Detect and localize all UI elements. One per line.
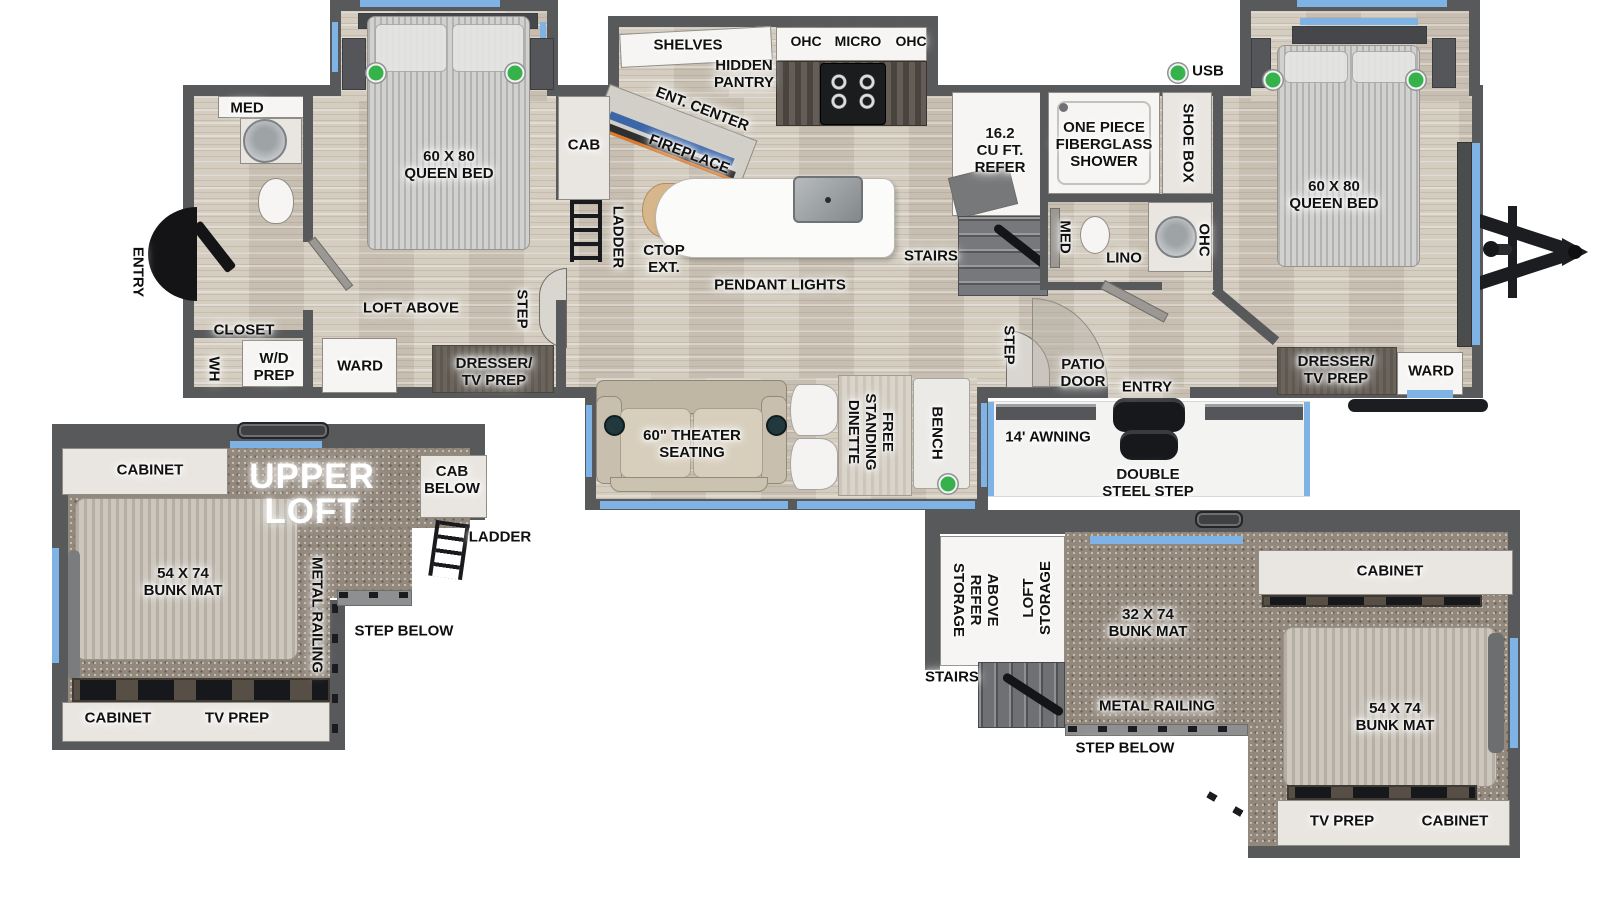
theater-arm-left <box>596 396 622 484</box>
front-headboard-window <box>1300 18 1418 25</box>
rear-nightstand-left <box>342 38 366 90</box>
rear-entry-label: ENTRY <box>129 247 146 297</box>
loftB-stepdown-ticks <box>1206 791 1248 820</box>
front-dresser <box>1277 347 1397 395</box>
usb-charge-dot <box>367 64 386 83</box>
loft-ladder-icon <box>570 200 602 262</box>
loftA-cabinet-top <box>62 448 228 495</box>
loftA-ladder-label: LADDER <box>469 530 532 547</box>
shoe-box <box>1162 92 1212 194</box>
front-slideout-window-top <box>1297 0 1447 7</box>
loftB-bunk54 <box>1283 627 1497 787</box>
living-window-bottom-1 <box>600 501 788 509</box>
loftB-cabinet-bottom <box>1277 800 1510 846</box>
loftB-bottom-wall <box>1260 846 1520 858</box>
loftB-step-below-label: STEP BELOW <box>1076 741 1175 758</box>
loftA-cabinet-bottom <box>62 702 330 742</box>
roof-vent-icon <box>1195 511 1243 528</box>
awning-arm-right <box>1205 404 1303 420</box>
front-tv-panel <box>1457 142 1472 347</box>
living-window-left <box>586 405 592 477</box>
ohc-micro-cabinet <box>776 27 927 61</box>
front-nightstand-right <box>1432 38 1456 88</box>
loftA-rail-ticks <box>332 604 338 740</box>
theater-cushion-left <box>620 408 691 478</box>
bath-mid-wall-h <box>1040 194 1223 202</box>
showerhead-icon <box>1059 103 1068 112</box>
loftA-bunk-mat <box>75 498 298 660</box>
loftA-cab-below <box>420 455 487 518</box>
roof-vent-icon <box>237 422 329 439</box>
loftB-rail-ticks <box>1068 726 1246 732</box>
bath-bed-divider-upper <box>303 96 313 242</box>
usb-charge-dot <box>506 64 525 83</box>
toilet-mid <box>1080 216 1110 254</box>
bed-kitchen-divider-lower <box>556 300 566 387</box>
rear-dresser <box>432 345 554 393</box>
rear-ward <box>322 338 397 393</box>
front-pillow-left <box>1284 51 1348 83</box>
loftA-mat-rail <box>68 550 80 680</box>
rear-bumper-bar <box>1348 399 1488 412</box>
loftB-window-right <box>1510 638 1518 748</box>
loftA-window-left <box>52 548 59 663</box>
kitchen-cab <box>558 96 610 200</box>
theater-cushion-right <box>693 408 763 478</box>
loftB-stairs-label: STAIRS <box>925 670 979 687</box>
living-window-bottom-2 <box>797 501 975 509</box>
awning-end-right <box>1304 402 1310 496</box>
trailer-hitch-icon <box>1478 196 1593 308</box>
loftB-refer-edge <box>928 536 940 666</box>
awning-arm-left <box>996 404 1096 420</box>
entry-door-swing <box>148 207 197 301</box>
front-bottom-window <box>1407 390 1453 398</box>
usb-port-dot <box>1169 64 1188 83</box>
shower <box>1048 92 1160 194</box>
usb-charge-dot <box>1264 71 1283 90</box>
front-ward <box>1397 352 1463 395</box>
cupholder-icon <box>604 415 625 436</box>
theater-front <box>610 477 768 492</box>
dinette-table <box>838 375 912 496</box>
loftB-cabinet-top <box>1258 550 1513 595</box>
usb-charge-dot <box>939 475 958 494</box>
wd-prep-box <box>242 340 306 387</box>
loftB-refer-storage <box>940 536 1065 666</box>
loftB-mat-rail <box>1488 633 1504 753</box>
cooktop-stove-icon <box>820 63 886 125</box>
rv-floorplan-canvas: ENTRY MED CLOSET WH W/D PREP 60 X 80 QUE… <box>0 0 1600 897</box>
awning-end-left <box>988 402 994 496</box>
loftA-step-ticks <box>339 592 411 598</box>
cupholder-icon <box>766 415 787 436</box>
dinette-chair-1 <box>790 384 838 436</box>
entry-opening <box>1108 387 1190 398</box>
theater-arm-right <box>761 396 787 484</box>
loftA-step-below-label: STEP BELOW <box>355 624 454 641</box>
steel-step-2 <box>1120 430 1178 460</box>
island-sink <box>793 176 863 223</box>
living-window-right <box>981 403 987 487</box>
usb-label: USB <box>1192 64 1224 81</box>
loftA-tv-slots <box>72 678 330 702</box>
rear-nightstand-right <box>530 38 554 90</box>
usb-charge-dot <box>1407 71 1426 90</box>
rear-pillow-left <box>375 24 447 72</box>
loftA-ladder-icon <box>428 520 469 580</box>
loftB-window-top <box>1090 536 1243 544</box>
bath-sink <box>243 119 287 163</box>
med-cabinet <box>218 96 304 118</box>
loftA-carpet-ext <box>330 528 412 598</box>
closet-wall <box>194 330 312 338</box>
dinette-bench <box>913 378 970 489</box>
front-headboard <box>1292 26 1427 44</box>
loftB-cab-slots <box>1262 595 1482 607</box>
dinette-chair-2 <box>790 438 838 490</box>
bed1-divider <box>1213 96 1223 290</box>
rear-slideout-window-top <box>360 0 500 7</box>
toilet <box>258 178 294 224</box>
loftB-tv-slots <box>1287 785 1477 800</box>
med-cab-mid <box>1050 208 1060 268</box>
loftB-stairs <box>978 662 1065 728</box>
lav-sink <box>1155 216 1197 258</box>
bath-bed-divider-lower <box>303 310 313 387</box>
bath-mid-wall-v <box>1040 92 1048 290</box>
loftA-window-top <box>230 441 322 448</box>
steel-step-1 <box>1113 398 1185 432</box>
rear-slideout-window-left <box>332 22 338 72</box>
